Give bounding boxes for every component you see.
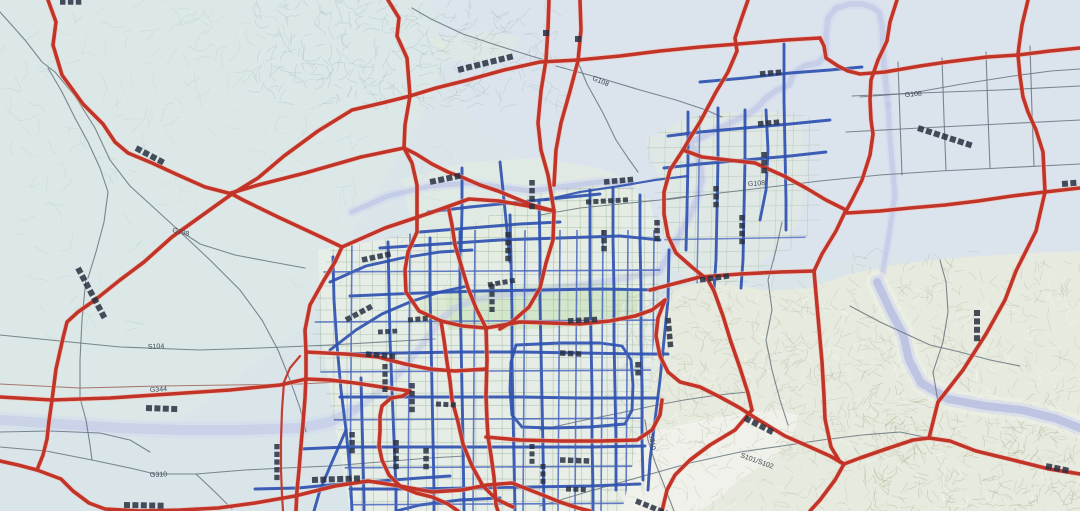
svg-text:G344: G344 <box>150 386 168 394</box>
svg-text:G310: G310 <box>150 471 167 479</box>
svg-text:G108: G108 <box>748 180 766 188</box>
svg-text:G108: G108 <box>905 91 923 99</box>
svg-text:S104: S104 <box>148 343 165 351</box>
